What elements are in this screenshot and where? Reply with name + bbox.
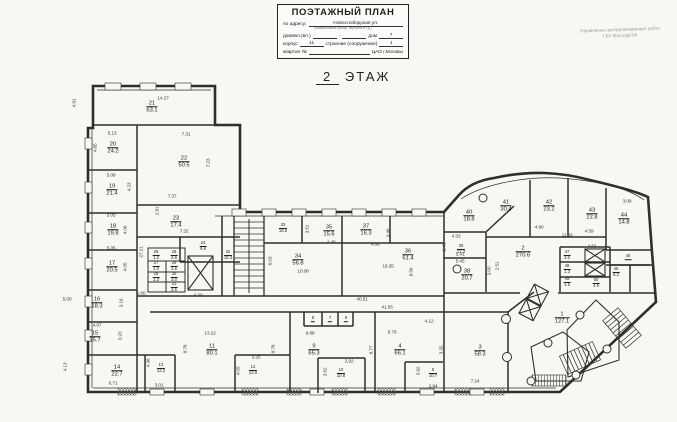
- title-block: ПОЭТАЖНЫЙ ПЛАН по адресу: Новослободская…: [277, 4, 409, 59]
- dimension-label: 5.13: [108, 132, 117, 137]
- room-label-36: 3661.4: [402, 248, 413, 262]
- ownership-blank2: [342, 38, 366, 39]
- room-label-31: 312.5: [171, 282, 178, 292]
- dimension-label: 6.03: [269, 257, 274, 266]
- window-openings: [85, 83, 484, 395]
- dimension-label: 3.51: [306, 225, 311, 234]
- dimension-label: 9.76: [388, 331, 397, 336]
- dimension-label: 4.20: [194, 294, 203, 299]
- floorplan-page: 1127.12270.6358.3466.1510.7678965.31010.…: [0, 0, 677, 422]
- title-block-heading: ПОЭТАЖНЫЙ ПЛАН: [283, 7, 403, 18]
- room-label-21: 2163.1: [146, 100, 157, 114]
- room-label-18: 1819.8: [107, 223, 118, 237]
- floor-number: 2: [316, 69, 339, 85]
- house-label: дом: [368, 34, 377, 39]
- house-value: 7: [379, 33, 403, 39]
- room-label-25: 251.2: [153, 250, 160, 260]
- korpus-label: корпус: [283, 42, 298, 47]
- dimension-label: 3.23: [119, 332, 124, 341]
- room-label-2: 2270.6: [516, 245, 531, 259]
- dimension-label: 41.55: [381, 306, 392, 311]
- dimension-label: 5.00: [63, 298, 72, 303]
- dimension-label: 4.33: [452, 235, 461, 240]
- room-label-9: 965.3: [308, 343, 319, 357]
- dimension-label: 7.32: [180, 230, 189, 235]
- dimension-label: 7.37: [168, 195, 177, 200]
- korpus-value: 11: [300, 41, 324, 47]
- room-label-29: 292.6: [171, 261, 178, 271]
- room-label-3: 358.3: [474, 344, 485, 358]
- room-label-7: 7: [328, 316, 332, 322]
- room-label-43: 4322.8: [586, 207, 597, 221]
- room-label-23: 2317.4: [170, 215, 181, 229]
- dimension-label: 5.05: [107, 247, 116, 252]
- dimension-label: 3.01: [155, 384, 164, 389]
- floor-word: ЭТАЖ: [345, 69, 391, 84]
- dimension-label: 16.35: [382, 265, 393, 270]
- dimension-label: 10.08: [297, 270, 308, 275]
- dimension-label: 14.27: [157, 97, 168, 102]
- dimension-label: 13.22: [204, 332, 215, 337]
- floor-title: 2 ЭТАЖ: [316, 69, 390, 84]
- dimension-label: 4.06: [124, 226, 129, 235]
- room-label-19: 1921.4: [106, 183, 117, 197]
- dimension-label: 4.12: [425, 320, 434, 325]
- dimension-label: 40.51: [356, 298, 367, 303]
- dimension-label: 6.71: [109, 382, 118, 387]
- district-value: ЦАО г.Москвы: [372, 50, 403, 55]
- room-label-22: 2250.5: [178, 155, 189, 169]
- room-label-15: 1515.7: [89, 330, 100, 344]
- dimension-label: 4.49: [327, 241, 336, 246]
- dimension-label: 5.45: [456, 260, 465, 265]
- dimension-label: 4.91: [73, 99, 78, 108]
- dimension-label: 3.62: [324, 368, 329, 377]
- dimension-label: 3.16: [120, 299, 125, 308]
- address-label: по адресу:: [283, 22, 307, 27]
- room-label-28: 281.3: [153, 272, 160, 282]
- dimension-label: 1.60: [137, 292, 146, 297]
- room-label-11: 1180.1: [206, 343, 217, 357]
- dimension-label: 4.64: [588, 245, 597, 250]
- dimension-label: 3.62: [417, 367, 422, 376]
- dimension-label: 7.23: [207, 159, 212, 168]
- dimension-label: 8.77: [370, 346, 375, 355]
- dimension-label: 7.31: [182, 133, 191, 138]
- room-label-40: 4018.8: [463, 209, 474, 223]
- dimension-label: 4.86: [371, 243, 380, 248]
- room-label-42: 4223.2: [543, 199, 554, 213]
- dimension-label: 4.09: [237, 367, 242, 376]
- stroenie-label: строение (сооружение): [326, 42, 378, 47]
- dimension-label: 8.76: [184, 345, 189, 354]
- dimension-label: 3.08: [623, 200, 632, 205]
- dimension-label: 27.21: [140, 246, 145, 257]
- room-label-5: 510.7: [429, 368, 437, 378]
- kvartal-blank: [309, 54, 370, 55]
- dimension-label: 2.40: [443, 243, 448, 252]
- dimension-label: 9.88: [306, 332, 315, 337]
- room-label-12: 1213.0: [249, 365, 257, 375]
- staircase-main: [234, 216, 264, 296]
- dimension-label: 4.23: [128, 183, 133, 192]
- dimension-label: 5.41: [456, 253, 465, 258]
- room-label-33: 3316.0: [279, 223, 287, 233]
- room-label-38: 3820.7: [461, 268, 472, 282]
- dimension-label: 4.59: [585, 230, 594, 235]
- room-label-47: 472.0: [564, 250, 571, 260]
- room-label-10: 1010.8: [337, 368, 345, 378]
- room-label-20: 2024.2: [107, 141, 118, 155]
- dimension-label: 3.00: [488, 267, 493, 276]
- room-label-8: 8: [311, 316, 315, 322]
- dimension-label: 2.94: [429, 385, 438, 390]
- room-label-32: 3218.3: [224, 250, 232, 260]
- room-label-35: 3515.6: [323, 224, 334, 238]
- dimension-label: 4.05: [124, 263, 129, 272]
- dimension-label: 3.32: [440, 346, 445, 355]
- room-label-17: 1720.5: [106, 260, 117, 274]
- dimension-label: 8.76: [272, 345, 277, 354]
- address-note: (наименование улицы, переулка и т.д.): [283, 27, 403, 30]
- room-label-1: 1127.1: [555, 311, 570, 325]
- dimension-label: 4.90: [535, 226, 544, 231]
- dimension-label: 2.51: [496, 262, 501, 271]
- room-label-49: 491.5: [564, 277, 571, 287]
- dimension-label: 4.85: [94, 144, 99, 153]
- room-label-16: 1618.3: [91, 296, 102, 310]
- dimension-label: 2.92: [345, 360, 354, 365]
- dimension-label: 11.59: [562, 234, 573, 239]
- room-label-27: 271.0: [153, 261, 160, 271]
- dimension-label: 8.56: [410, 268, 415, 277]
- elevator-shafts: [188, 249, 605, 321]
- ownership-label: домовл.(вл.): [283, 34, 311, 39]
- room-label-50: 504.9: [593, 278, 600, 288]
- kvartal-label: квартал №: [283, 50, 307, 55]
- room-label-46: 466.2: [613, 267, 620, 277]
- room-label-13: 1312.2: [157, 363, 165, 373]
- dimension-label: 4.97: [93, 324, 102, 329]
- dimension-label: 4.13: [64, 363, 69, 372]
- room-label-45: 45: [625, 254, 632, 260]
- dimension-label: 5.08: [107, 174, 116, 179]
- dimension-label: 4.38: [147, 359, 152, 368]
- room-label-6: 6: [344, 316, 348, 322]
- room-label-44: 4414.8: [618, 212, 629, 226]
- dimension-label: 5.05: [107, 214, 116, 219]
- room-label-34: 3456.8: [292, 253, 303, 267]
- dimension-label: 2.91: [156, 207, 161, 216]
- room-label-4: 466.1: [394, 343, 405, 357]
- dimension-label: 3.46: [387, 229, 392, 238]
- floor-plan-drawing: [0, 0, 677, 422]
- ownership-blank: [313, 38, 337, 39]
- room-label-14: 1422.7: [111, 364, 122, 378]
- stroenie-value: 1: [379, 41, 403, 47]
- room-label-48: 481.3: [564, 264, 571, 274]
- ownership-dash: -: [339, 34, 341, 39]
- room-label-41: 4130.4: [500, 199, 511, 213]
- room-label-37: 3716.3: [360, 223, 371, 237]
- room-label-26: 262.6: [171, 250, 178, 260]
- dimension-label: 7.24: [471, 380, 480, 385]
- room-label-24: 249.9: [200, 241, 207, 251]
- dimension-label: 3.25: [252, 356, 261, 361]
